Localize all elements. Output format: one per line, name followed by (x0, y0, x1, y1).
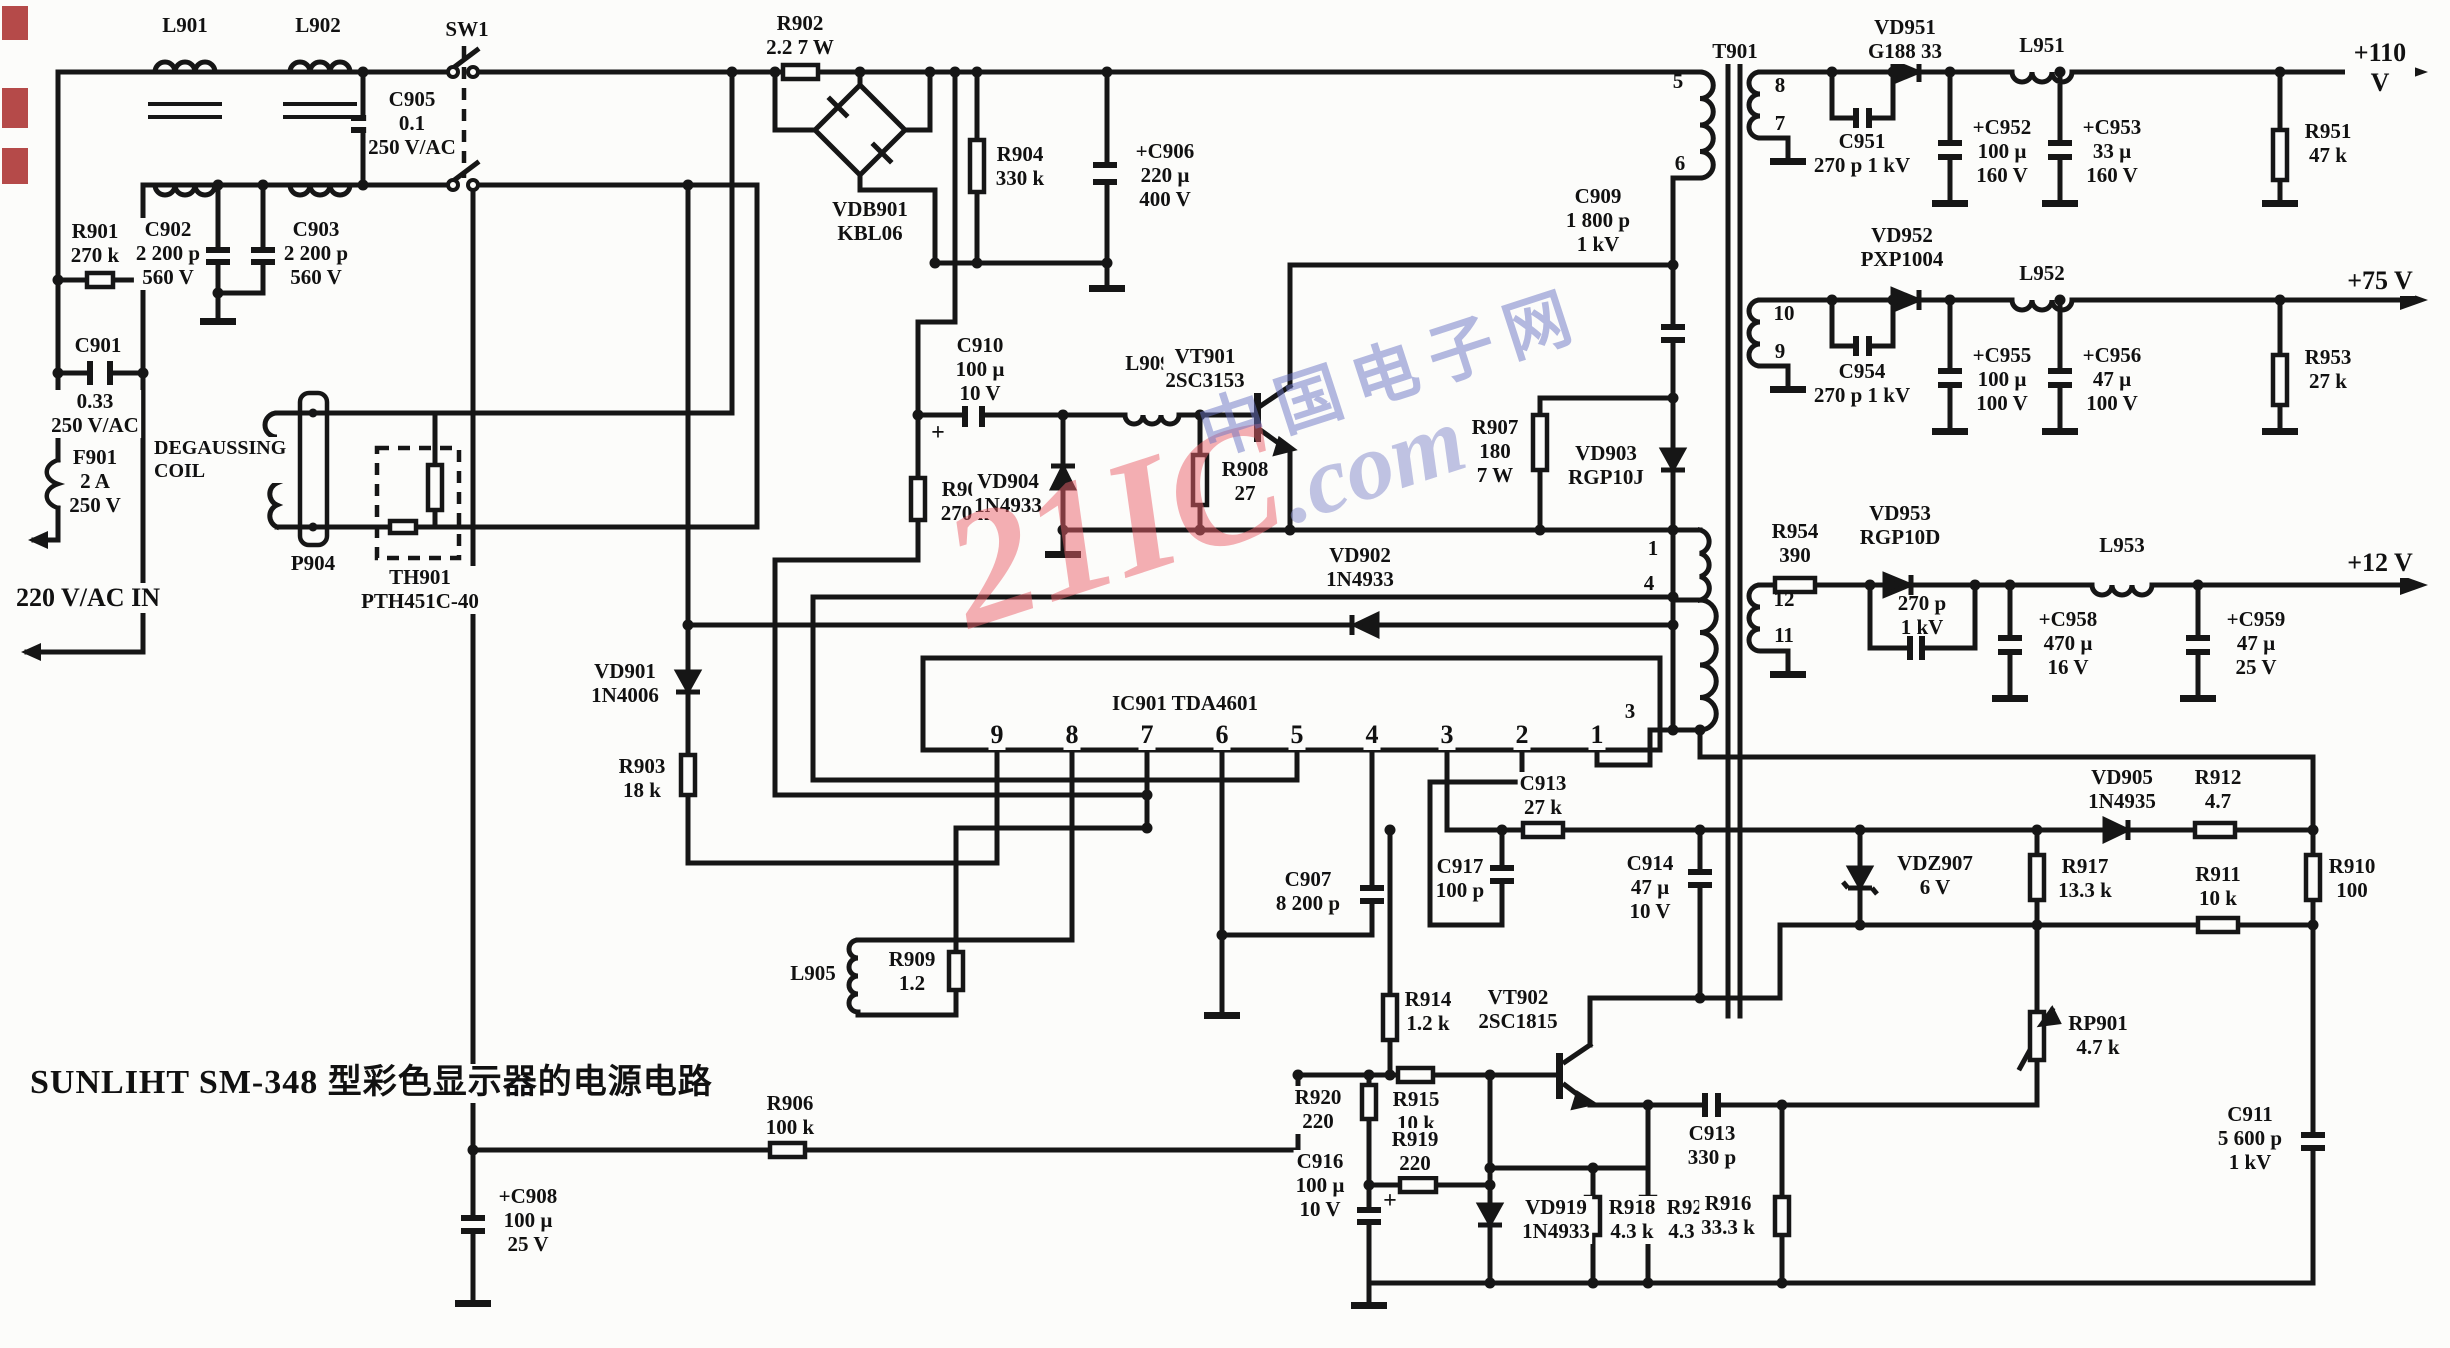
label-c901-value: 0.33 250 V/AC (49, 390, 141, 438)
label-r910: R910 100 (2327, 855, 2378, 903)
label-c954: C954 270 p 1 kV (1812, 360, 1912, 408)
label-c914: C914 47 µ 10 V (1625, 852, 1676, 924)
t901-pin-4: 4 (1644, 572, 1655, 596)
label-c910: C910 100 µ 10 V (954, 334, 1007, 406)
label-l902: L902 (293, 14, 343, 38)
label-c957-value: 270 p 1 kV (1898, 592, 1946, 640)
label-sw1: SW1 (443, 18, 490, 42)
resistor-boxes (87, 65, 2320, 1235)
label-vd919: VD919 1N4933 (1520, 1196, 1592, 1244)
page-title: SUNLIHT SM-348 型彩色显示器的电源电路 (28, 1064, 715, 1103)
label-r909: R909 1.2 (887, 948, 938, 996)
t901-pin-12: 12 (1774, 588, 1795, 612)
label-c916-plus: + (1381, 1188, 1399, 1215)
label-r903: R903 18 k (617, 755, 668, 803)
t901-pin-7: 7 (1775, 112, 1786, 136)
label-c910-plus: + (929, 420, 947, 447)
label-c903: C903 2 200 p 560 V (282, 218, 350, 290)
ic-pin-6: 6 (1214, 720, 1231, 750)
ic-pin-2: 2 (1514, 720, 1531, 750)
label-c905: C905 0.1 250 V/AC (366, 88, 458, 160)
label-rail-75v: +75 V (2345, 266, 2415, 296)
t901-pin-8: 8 (1775, 74, 1786, 98)
label-vt902: VT902 2SC1815 (1476, 986, 1559, 1034)
label-f901: F901 2 A 250 V (67, 446, 123, 518)
label-ic901: IC901 TDA4601 (1110, 692, 1260, 716)
label-c902: C902 2 200 p 560 V (134, 218, 202, 290)
label-r953: R953 27 k (2303, 346, 2354, 394)
ic-pin-4: 4 (1364, 720, 1381, 750)
ic-pin-3: 3 (1439, 720, 1456, 750)
label-c907: C907 8 200 p (1274, 868, 1342, 916)
label-c953: +C953 33 µ 160 V (2081, 116, 2144, 188)
label-r916: R916 33.3 k (1699, 1192, 1757, 1240)
label-t901: T901 (1710, 40, 1760, 64)
label-r912: R912 4.7 (2193, 766, 2244, 814)
label-c908: +C908 100 µ 25 V (497, 1185, 560, 1257)
t901-pin-6: 6 (1675, 152, 1686, 176)
label-l901: L901 (160, 14, 210, 38)
label-vd952: VD952 PXP1004 (1859, 224, 1946, 272)
label-vd951: VD951 G188 33 (1866, 16, 1944, 64)
label-c955: +C955 100 µ 100 V (1971, 344, 2034, 416)
t901-pin-9: 9 (1775, 340, 1786, 364)
label-c952: +C952 100 µ 160 V (1971, 116, 2034, 188)
label-l905: L905 (788, 962, 838, 986)
label-r908: R908 27 (1220, 458, 1271, 506)
capacitor-plates (90, 108, 2325, 1231)
label-vd902: VD902 1N4933 (1324, 544, 1396, 592)
label-r907: R907 180 7 W (1470, 416, 1521, 488)
label-c956: +C956 47 µ 100 V (2081, 344, 2144, 416)
label-c958: +C958 470 µ 16 V (2037, 608, 2100, 680)
t901-pin-1: 1 (1648, 537, 1659, 561)
t901-pin-3: 3 (1625, 700, 1636, 724)
label-c913-330p: C913 330 p (1686, 1122, 1738, 1170)
label-c901-ref: C901 (73, 334, 124, 358)
label-l953: L953 (2097, 534, 2147, 558)
label-p904: P904 (289, 552, 337, 576)
t901-pin-11: 11 (1774, 624, 1794, 648)
label-c911: C911 5 600 p 1 kV (2216, 1103, 2284, 1175)
label-r920: R920 220 (1293, 1086, 1344, 1134)
label-vd901: VD901 1N4006 (589, 660, 661, 708)
ic-pin-8: 8 (1064, 720, 1081, 750)
label-r902: R902 2.2 7 W (764, 12, 836, 60)
label-l951: L951 (2017, 34, 2067, 58)
label-vd905: VD905 1N4935 (2086, 766, 2158, 814)
label-r914: R914 1.2 k (1403, 988, 1454, 1036)
label-c959: +C959 47 µ 25 V (2225, 608, 2288, 680)
label-rp901: RP901 4.7 k (2066, 1012, 2130, 1060)
schematic-page: L901 L902 SW1 R902 2.2 7 W C905 0.1 250 … (0, 0, 2450, 1348)
label-ac-input: 220 V/AC IN (14, 583, 162, 613)
label-rail-110v: +110 V (2345, 38, 2415, 97)
label-degaussing-coil: DEGAUSSING COIL (152, 437, 288, 483)
label-rail-12v: +12 V (2345, 548, 2415, 578)
ic-pin-7: 7 (1139, 720, 1156, 750)
label-c916: C916 100 µ 10 V (1294, 1150, 1347, 1222)
label-vdz907: VDZ907 6 V (1895, 852, 1975, 900)
label-c951: C951 270 p 1 kV (1812, 130, 1912, 178)
label-c917: C917 100 p (1434, 855, 1486, 903)
label-th901: TH901 PTH451C-40 (359, 566, 481, 614)
label-r911: R911 10 k (2193, 863, 2243, 911)
label-r904: R904 330 k (994, 143, 1046, 191)
t901-pin-10: 10 (1774, 302, 1795, 326)
label-c913-27k: C913 27 k (1518, 772, 1569, 820)
red-stamp-2 (2, 88, 28, 128)
label-r919: R919 220 (1390, 1128, 1441, 1176)
label-vd903: VD903 RGP10J (1566, 442, 1646, 490)
label-r917: R917 13.3 k (2056, 855, 2114, 903)
label-c906: +C906 220 µ 400 V (1134, 140, 1197, 212)
label-vd904: VD904 1N4933 (972, 470, 1044, 518)
ic-pin-9: 9 (989, 720, 1006, 750)
label-vd953: VD953 RGP10D (1858, 502, 1943, 550)
red-stamp-1 (2, 6, 28, 40)
red-stamp-3 (2, 148, 28, 184)
label-r918: R918 4.3 k (1607, 1196, 1658, 1244)
label-r901: R901 270 k (69, 220, 121, 268)
label-vdb901: VDB901 KBL06 (830, 198, 910, 246)
ic-pin-5: 5 (1289, 720, 1306, 750)
label-vt901: VT901 2SC3153 (1163, 345, 1246, 393)
label-l952: L952 (2017, 262, 2067, 286)
label-r954: R954 390 (1770, 520, 1821, 568)
label-r951: R951 47 k (2303, 120, 2354, 168)
ic-pin-1: 1 (1589, 720, 1606, 750)
label-c909: C909 1 800 p 1 kV (1564, 185, 1632, 257)
t901-pin-5: 5 (1673, 70, 1684, 94)
ground-symbols (200, 158, 2298, 1309)
label-r906: R906 100 k (764, 1092, 816, 1140)
